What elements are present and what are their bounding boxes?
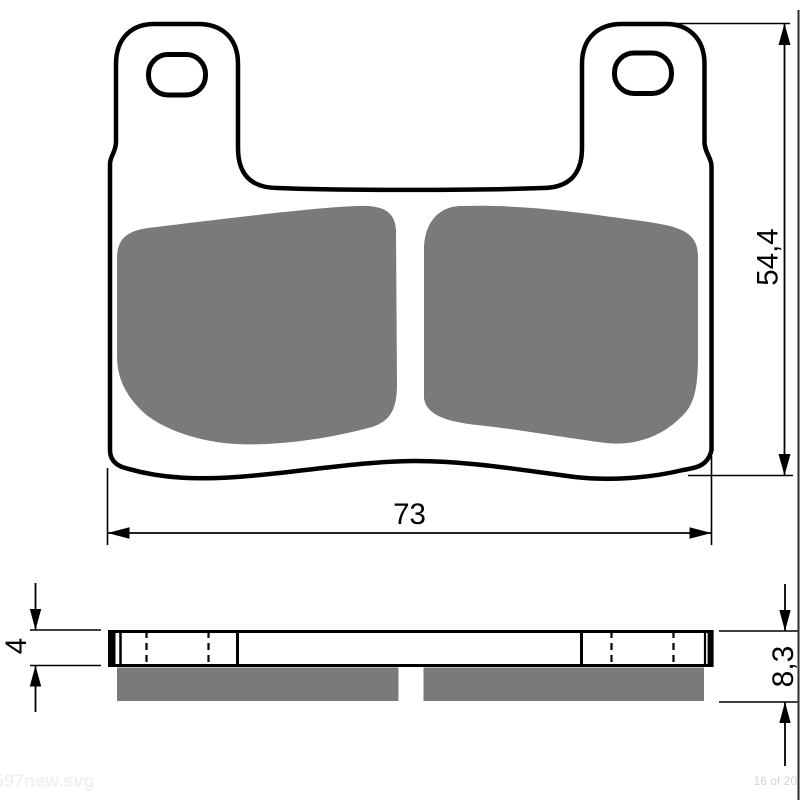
svg-text:8,3: 8,3 (767, 646, 800, 688)
svg-text:16 of 20: 16 of 20 (754, 774, 798, 788)
svg-text:73: 73 (393, 498, 426, 531)
svg-text:4: 4 (0, 638, 33, 654)
svg-text:597new.svg: 597new.svg (0, 771, 94, 791)
svg-text:54,4: 54,4 (752, 228, 785, 285)
